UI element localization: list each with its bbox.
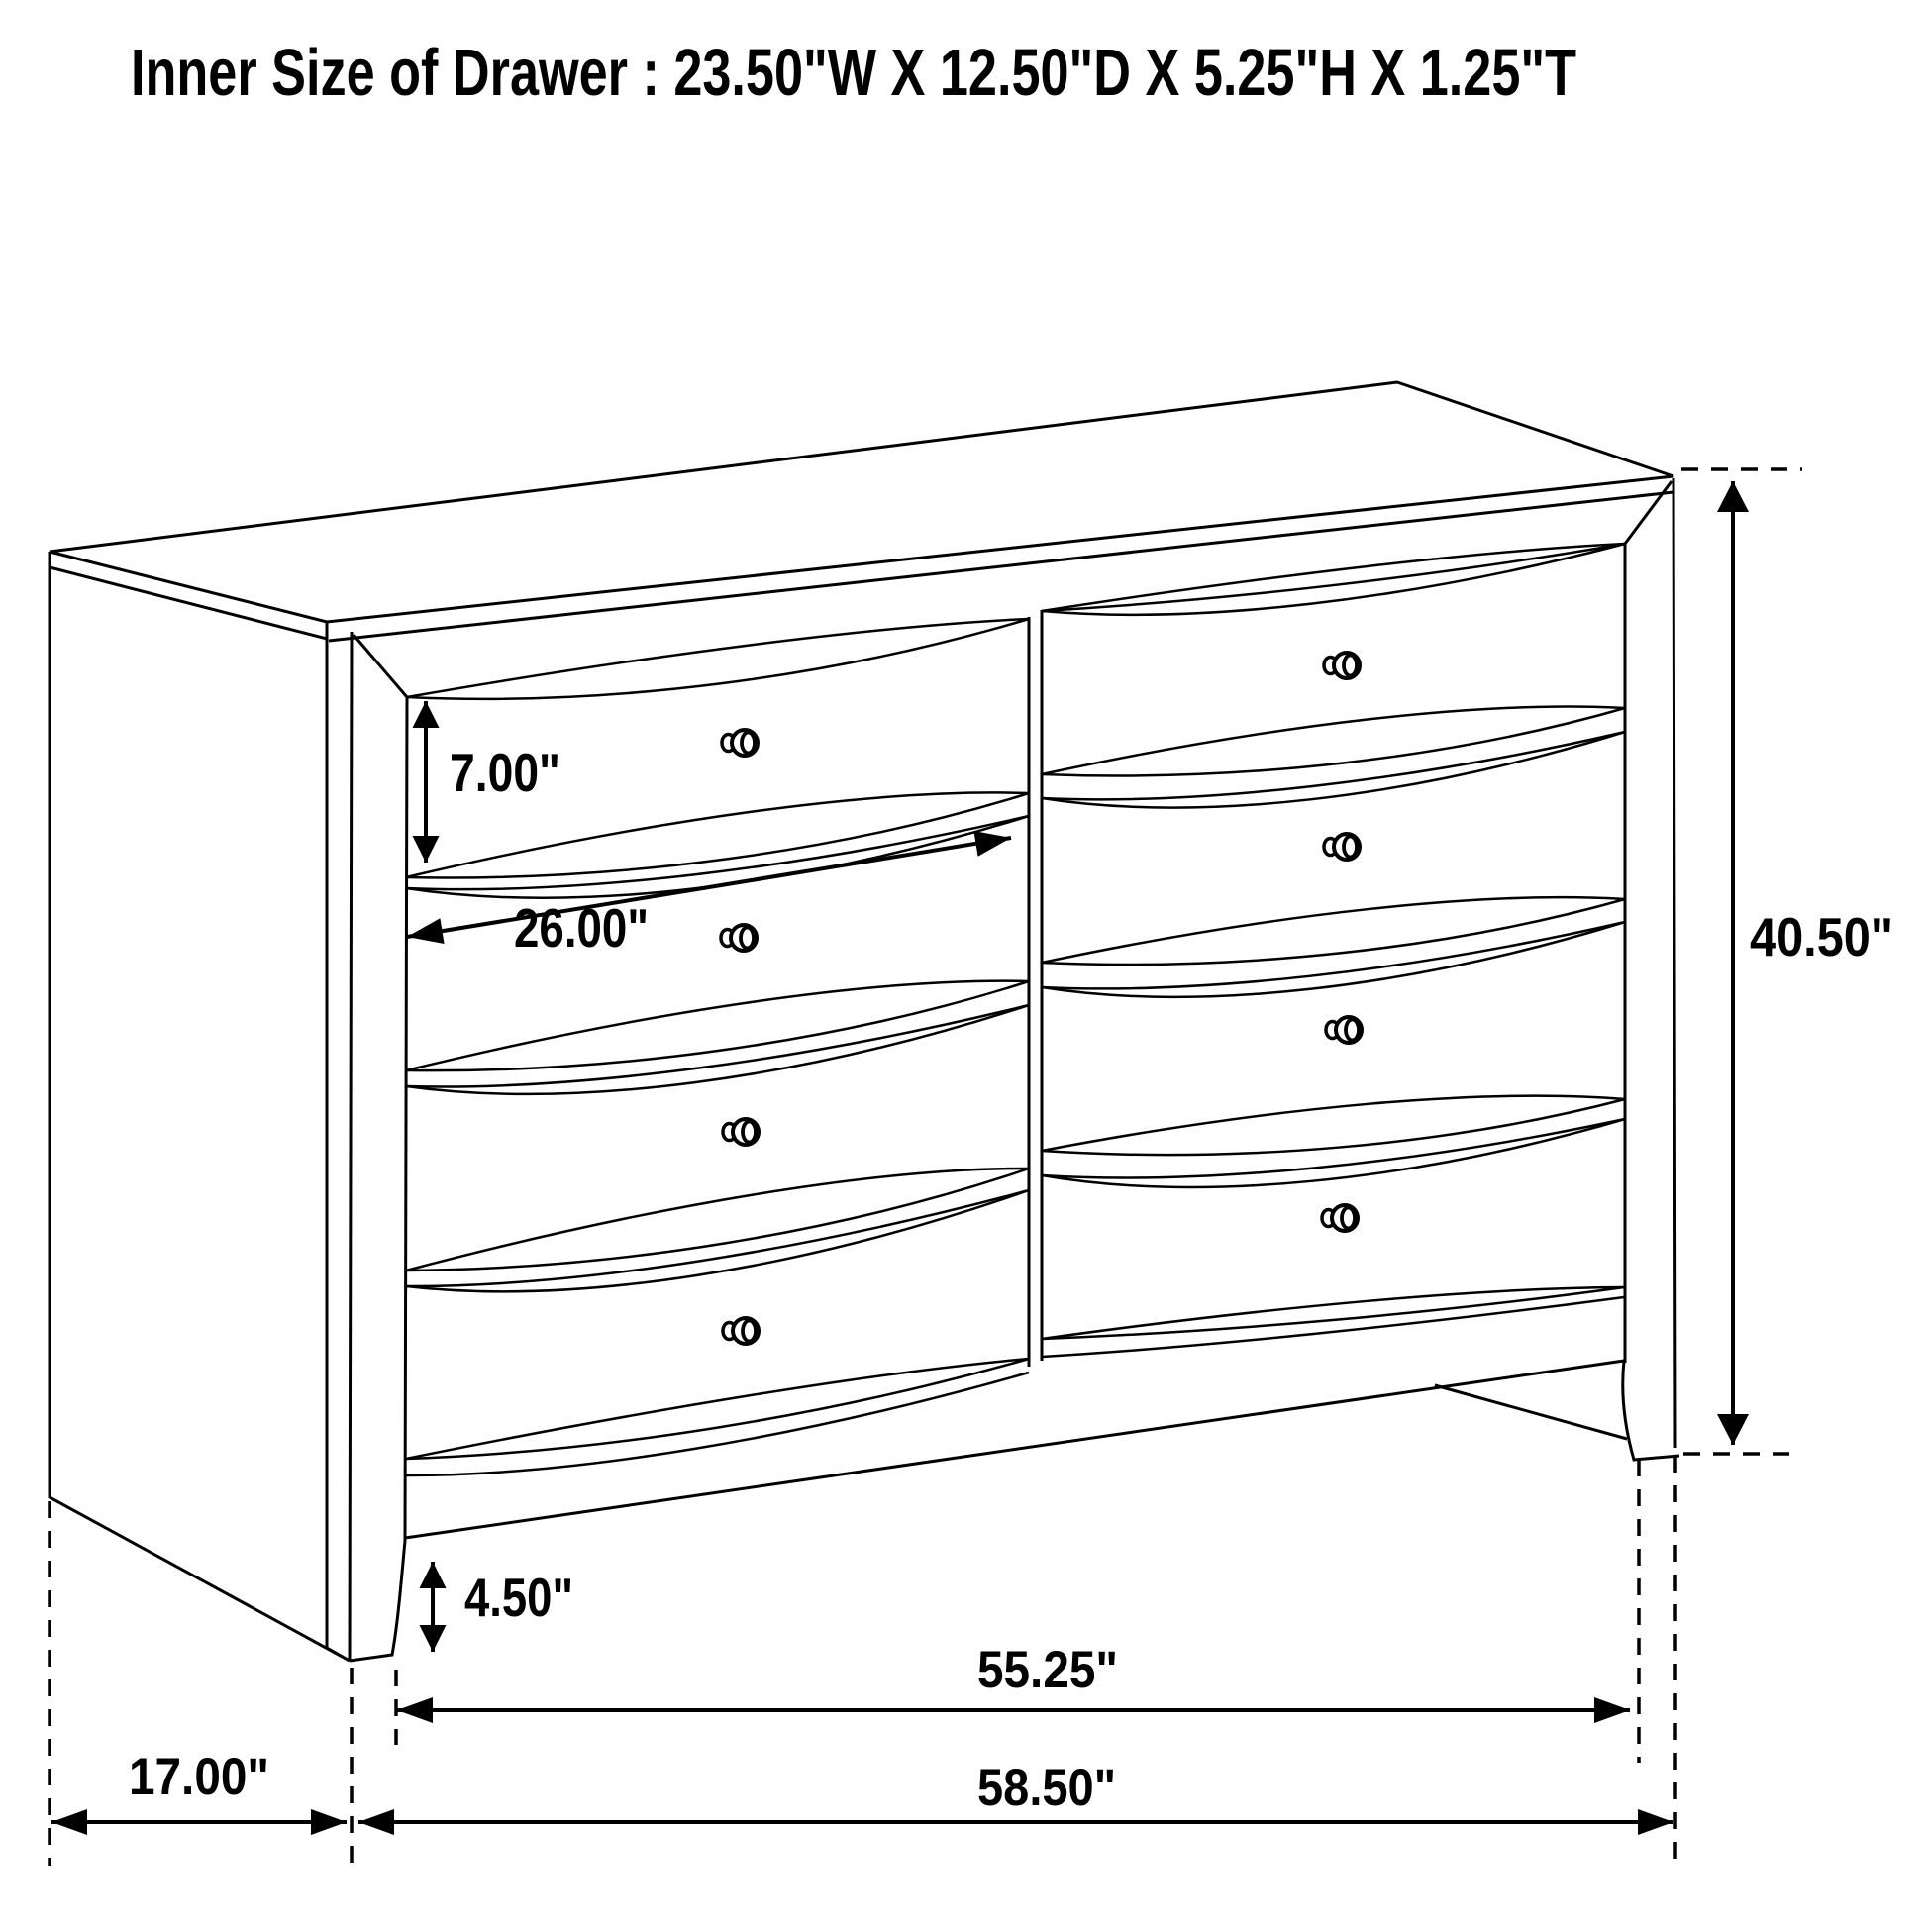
- svg-text:7.00": 7.00": [450, 742, 560, 803]
- svg-text:58.50": 58.50": [977, 1759, 1116, 1817]
- svg-text:4.50": 4.50": [464, 1567, 573, 1628]
- svg-text:17.00": 17.00": [129, 1748, 269, 1806]
- svg-text:26.00": 26.00": [514, 897, 649, 959]
- svg-text:55.25": 55.25": [977, 1641, 1118, 1699]
- svg-text:Inner Size of Drawer : 23.50"W: Inner Size of Drawer : 23.50"W X 12.50"D…: [131, 36, 1576, 110]
- svg-text:40.50": 40.50": [1750, 906, 1893, 967]
